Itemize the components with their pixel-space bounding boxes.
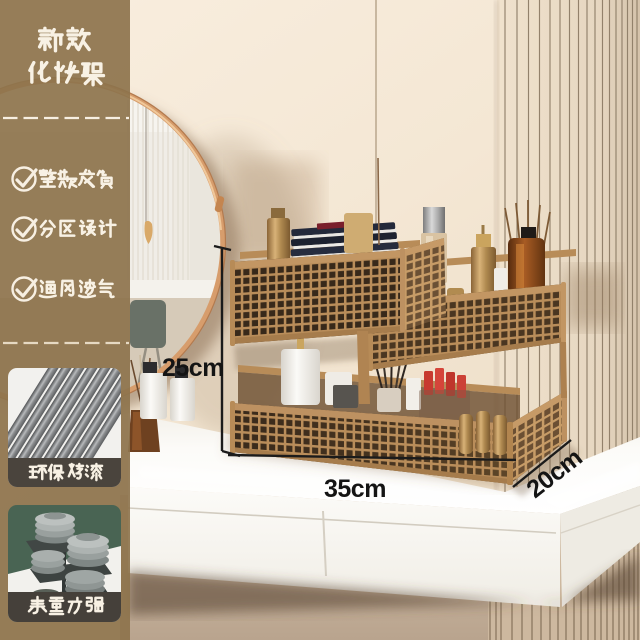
svg-text:35cm: 35cm	[324, 475, 386, 503]
svg-text:25cm: 25cm	[162, 354, 224, 382]
